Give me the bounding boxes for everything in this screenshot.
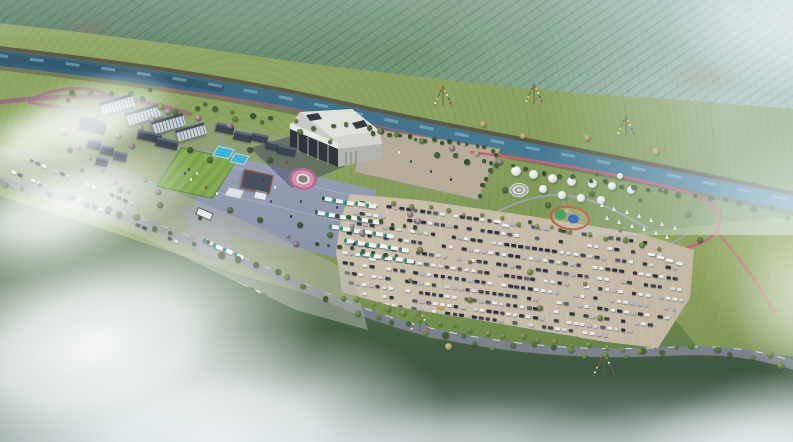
valley-mist: [0, 372, 793, 442]
cloud: [653, 0, 793, 115]
aerial-rendering-scene: Bird's-eye rendering of a riverside tour…: [0, 0, 793, 442]
